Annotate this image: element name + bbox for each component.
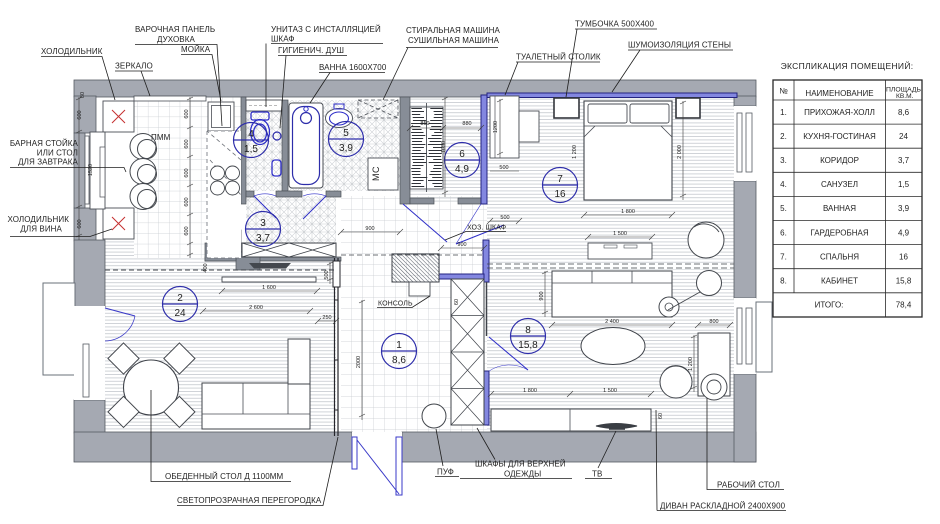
svg-text:3,9: 3,9 [898, 204, 910, 213]
svg-text:ПРИХОЖАЯ-ХОЛЛ: ПРИХОЖАЯ-ХОЛЛ [804, 108, 875, 117]
svg-text:850: 850 [420, 121, 429, 127]
svg-text:ШКАФ: ШКАФ [271, 35, 295, 44]
svg-text:3.: 3. [780, 156, 787, 165]
svg-text:ПУФ: ПУФ [437, 468, 454, 477]
svg-text:600: 600 [184, 226, 190, 235]
svg-text:ВАННАЯ: ВАННАЯ [823, 204, 856, 213]
svg-text:СВЕТОПРОЗРАЧНАЯ ПЕРЕГОРОДКА: СВЕТОПРОЗРАЧНАЯ ПЕРЕГОРОДКА [177, 496, 322, 505]
svg-text:900: 900 [457, 242, 466, 248]
svg-text:800: 800 [709, 319, 718, 325]
svg-text:1 200: 1 200 [688, 357, 694, 371]
svg-text:7: 7 [557, 174, 563, 185]
svg-text:1: 1 [396, 340, 402, 351]
svg-text:600: 600 [184, 197, 190, 206]
svg-text:600: 600 [184, 109, 190, 118]
svg-text:СТИРАЛЬНАЯ МАШИНА: СТИРАЛЬНАЯ МАШИНА [406, 26, 501, 35]
svg-text:4,9: 4,9 [455, 164, 469, 175]
svg-text:ТУАЛЕТНЫЙ СТОЛИК: ТУАЛЕТНЫЙ СТОЛИК [516, 53, 601, 62]
svg-text:САНУЗЕЛ: САНУЗЕЛ [821, 180, 858, 189]
svg-text:ДУХОВКА: ДУХОВКА [157, 35, 195, 44]
svg-text:ВАННА 1600Х700: ВАННА 1600Х700 [319, 63, 387, 72]
svg-text:8.: 8. [780, 277, 787, 286]
svg-text:3,9: 3,9 [339, 143, 353, 154]
svg-text:ХОЛОДИЛЬНИК: ХОЛОДИЛЬНИК [8, 215, 70, 224]
svg-text:16: 16 [899, 252, 908, 261]
svg-text:5: 5 [343, 128, 349, 139]
svg-text:500: 500 [324, 270, 330, 279]
svg-text:8,6: 8,6 [392, 355, 406, 366]
svg-text:600: 600 [184, 168, 190, 177]
svg-text:24: 24 [899, 132, 908, 141]
svg-text:КАБИНЕТ: КАБИНЕТ [821, 277, 858, 286]
svg-text:ШУМОИЗОЛЯЦИЯ СТЕНЫ: ШУМОИЗОЛЯЦИЯ СТЕНЫ [628, 41, 731, 50]
svg-text:КУХНЯ-ГОСТИНАЯ: КУХНЯ-ГОСТИНАЯ [803, 132, 876, 141]
svg-text:8: 8 [525, 325, 531, 336]
svg-text:16: 16 [554, 189, 566, 200]
svg-text:1 500: 1 500 [613, 231, 627, 237]
svg-text:3,7: 3,7 [256, 233, 270, 244]
svg-text:ХОЛОДИЛЬНИК: ХОЛОДИЛЬНИК [41, 47, 103, 56]
svg-text:СУШИЛЬНАЯ МАШИНА: СУШИЛЬНАЯ МАШИНА [408, 36, 500, 45]
svg-text:4: 4 [248, 129, 254, 140]
svg-text:600: 600 [77, 219, 83, 228]
svg-text:РАБОЧИЙ СТОЛ: РАБОЧИЙ СТОЛ [717, 481, 780, 490]
svg-text:1 800: 1 800 [523, 388, 537, 394]
svg-text:15,8: 15,8 [896, 277, 912, 286]
svg-text:КОНСОЛЬ: КОНСОЛЬ [378, 301, 413, 308]
svg-text:600: 600 [184, 139, 190, 148]
svg-text:ЭКСПЛИКАЦИЯ ПОМЕЩЕНИЙ:: ЭКСПЛИКАЦИЯ ПОМЕЩЕНИЙ: [781, 60, 914, 71]
svg-text:ТУМБОЧКА 500Х400: ТУМБОЧКА 500Х400 [575, 20, 654, 29]
svg-text:4.: 4. [780, 180, 787, 189]
svg-text:6.: 6. [780, 228, 787, 237]
svg-text:880: 880 [462, 121, 471, 127]
svg-text:НАИМЕНОВАНИЕ: НАИМЕНОВАНИЕ [805, 89, 873, 98]
svg-text:ЗЕРКАЛО: ЗЕРКАЛО [115, 62, 153, 71]
svg-text:2 000: 2 000 [677, 145, 683, 159]
svg-text:15,8: 15,8 [518, 340, 538, 351]
svg-text:МС: МС [371, 166, 381, 181]
svg-text:3: 3 [260, 218, 266, 229]
svg-text:900: 900 [539, 291, 545, 300]
svg-text:1050: 1050 [441, 141, 447, 153]
svg-text:60: 60 [454, 299, 460, 305]
svg-text:1.: 1. [780, 108, 787, 117]
svg-text:ОБЕДЕННЫЙ СТОЛ Д 1100ММ: ОБЕДЕННЫЙ СТОЛ Д 1100ММ [165, 472, 284, 481]
svg-text:250: 250 [322, 315, 331, 321]
svg-text:900: 900 [365, 226, 374, 232]
svg-text:ТВ: ТВ [592, 470, 602, 479]
svg-text:1 600: 1 600 [262, 285, 276, 291]
svg-text:400: 400 [203, 263, 209, 272]
svg-text:2 600: 2 600 [249, 305, 263, 311]
svg-text:1,5: 1,5 [244, 144, 258, 155]
svg-text:ШКАФЫ ДЛЯ ВЕРХНЕЙ: ШКАФЫ ДЛЯ ВЕРХНЕЙ [475, 460, 566, 469]
svg-text:ВАРОЧНАЯ ПАНЕЛЬ: ВАРОЧНАЯ ПАНЕЛЬ [135, 25, 215, 34]
svg-text:3,7: 3,7 [898, 156, 910, 165]
svg-text:№: № [779, 87, 788, 96]
svg-text:2: 2 [177, 293, 183, 304]
svg-text:ПММ: ПММ [151, 133, 171, 142]
svg-text:КВ.М.: КВ.М. [896, 93, 914, 100]
svg-text:4,9: 4,9 [898, 228, 910, 237]
svg-text:6: 6 [459, 149, 465, 160]
svg-text:ОДЕЖДЫ: ОДЕЖДЫ [504, 470, 541, 479]
svg-text:2 400: 2 400 [605, 319, 619, 325]
svg-text:ГАРДЕРОБНАЯ: ГАРДЕРОБНАЯ [810, 228, 868, 237]
svg-text:78,4: 78,4 [896, 301, 912, 310]
svg-text:ДЛЯ ВИНА: ДЛЯ ВИНА [20, 225, 62, 234]
svg-text:ГИГИЕНИЧ. ДУШ: ГИГИЕНИЧ. ДУШ [278, 46, 344, 55]
svg-text:КОРИДОР: КОРИДОР [820, 156, 859, 165]
svg-text:8,6: 8,6 [898, 108, 910, 117]
svg-text:1 500: 1 500 [603, 388, 617, 394]
svg-text:2.: 2. [780, 132, 787, 141]
svg-text:БАРНАЯ СТОЙКА: БАРНАЯ СТОЙКА [10, 139, 79, 148]
svg-text:500: 500 [500, 215, 509, 221]
svg-text:1 200: 1 200 [572, 145, 578, 159]
svg-text:2000: 2000 [356, 356, 362, 368]
svg-text:ДИВАН РАСКЛАДНОЙ 2400Х900: ДИВАН РАСКЛАДНОЙ 2400Х900 [660, 502, 786, 511]
svg-text:60: 60 [658, 413, 664, 419]
svg-text:5.: 5. [780, 204, 787, 213]
svg-text:1 800: 1 800 [621, 209, 635, 215]
svg-text:МОЙКА: МОЙКА [181, 45, 211, 54]
svg-text:500: 500 [499, 165, 508, 171]
svg-text:ИЛИ СТОЛ: ИЛИ СТОЛ [37, 149, 78, 158]
svg-text:600: 600 [77, 110, 83, 119]
svg-text:1200: 1200 [493, 121, 499, 133]
svg-text:1520: 1520 [88, 164, 94, 176]
svg-text:СПАЛЬНЯ: СПАЛЬНЯ [820, 252, 859, 261]
svg-text:7.: 7. [780, 252, 787, 261]
svg-text:УНИТАЗ С ИНСТАЛЛЯЦИЕЙ: УНИТАЗ С ИНСТАЛЛЯЦИЕЙ [271, 25, 381, 34]
svg-text:ХОЗ. ШКАФ: ХОЗ. ШКАФ [467, 225, 506, 232]
svg-text:80: 80 [80, 92, 86, 98]
svg-text:ИТОГО:: ИТОГО: [815, 301, 844, 310]
svg-text:ДЛЯ ЗАВТРАКА: ДЛЯ ЗАВТРАКА [18, 158, 78, 167]
svg-text:24: 24 [174, 308, 186, 319]
svg-text:1,5: 1,5 [898, 180, 910, 189]
